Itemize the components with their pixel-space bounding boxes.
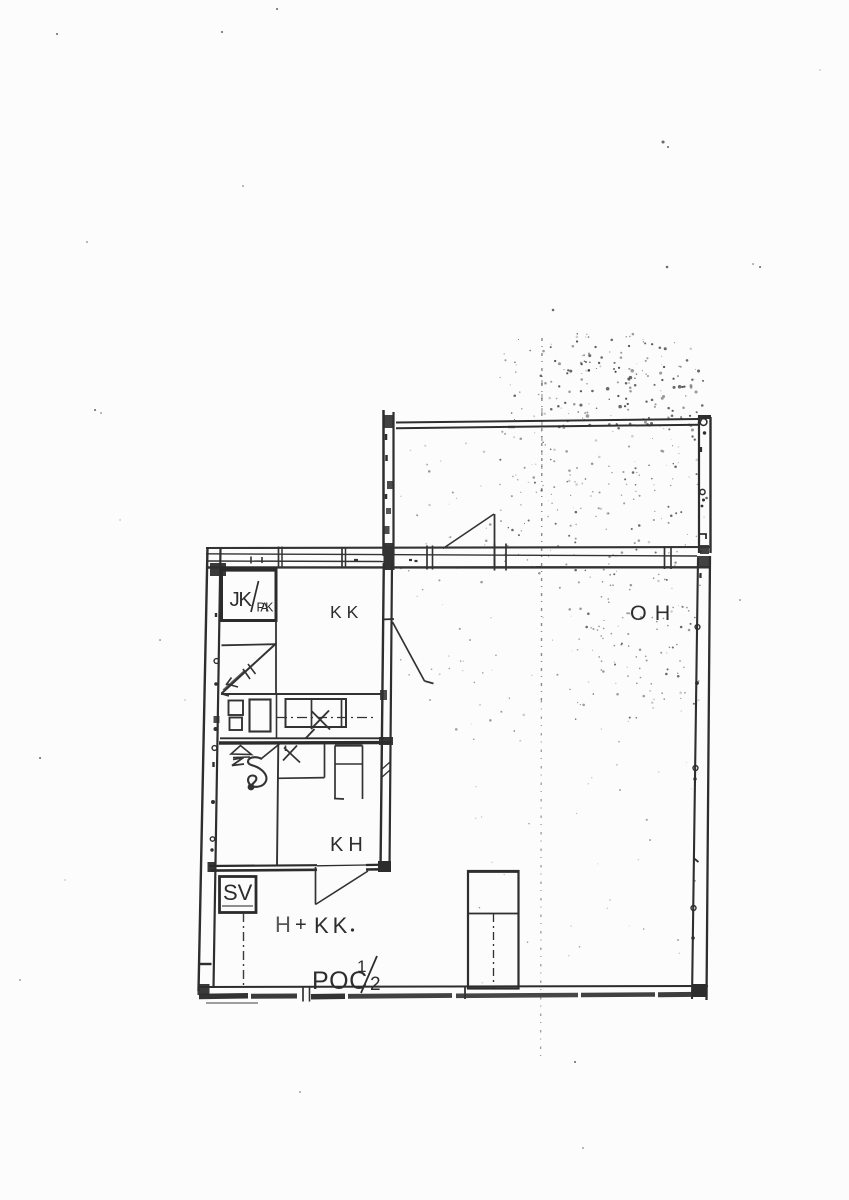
svg-text:KK: KK [330, 602, 363, 622]
svg-text:+: + [295, 914, 307, 936]
svg-text:1: 1 [357, 957, 366, 976]
svg-text:2: 2 [370, 974, 381, 995]
svg-text:SV: SV [223, 880, 253, 905]
svg-text:KH: KH [330, 834, 368, 856]
svg-text:H: H [275, 912, 291, 937]
svg-text:KK: KK [314, 913, 351, 938]
svg-text:JK: JK [230, 588, 253, 611]
svg-text:PAK: PAK [257, 601, 275, 615]
svg-text:OH: OH [630, 601, 678, 625]
